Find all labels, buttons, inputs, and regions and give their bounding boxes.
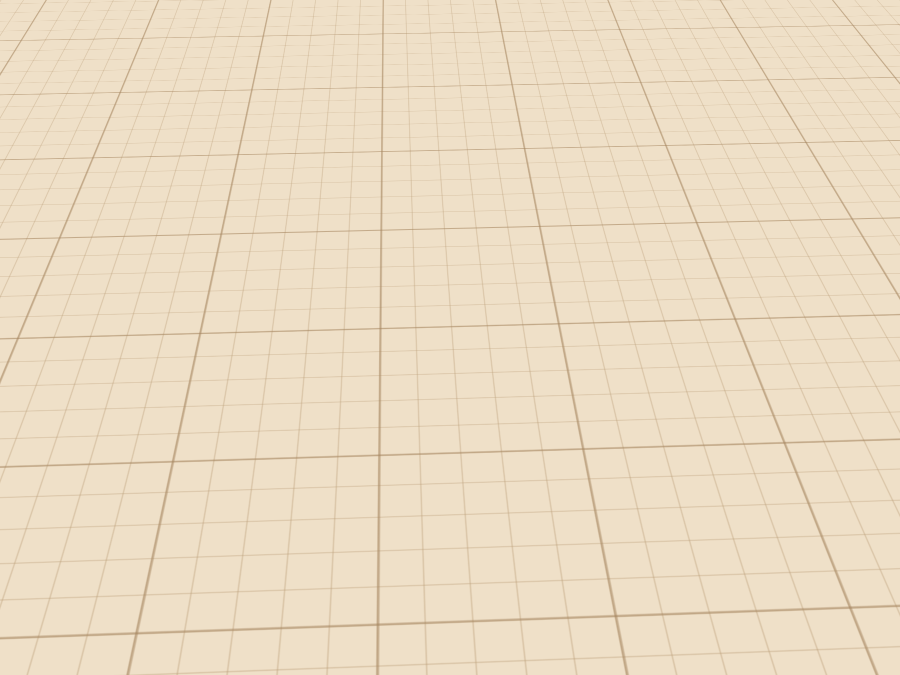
planner5d-3d-view: planner 5d <box>0 0 900 675</box>
tufted-armchair[interactable] <box>479 197 518 273</box>
glass-pane[interactable] <box>500 374 548 432</box>
red-door-with-mirror[interactable] <box>737 379 798 463</box>
apartment-render <box>0 0 900 675</box>
fruit-bowl[interactable] <box>225 348 249 365</box>
planner5d-logo-icon: 5d <box>864 645 888 667</box>
facade-maroon-panel[interactable] <box>183 531 309 592</box>
bar-stool[interactable] <box>360 379 384 403</box>
entry-door[interactable] <box>352 518 478 579</box>
watermark-text: planner <box>810 649 860 664</box>
wall-painting[interactable] <box>423 126 521 208</box>
serving-tray[interactable] <box>312 377 349 415</box>
facade-window[interactable] <box>487 518 551 562</box>
sunset-wall-art[interactable] <box>139 185 193 297</box>
planner5d-watermark: planner 5d <box>810 645 888 667</box>
round-shower-cabin[interactable] <box>679 377 735 503</box>
kettle[interactable] <box>364 409 384 429</box>
bar-stool[interactable] <box>358 344 380 366</box>
